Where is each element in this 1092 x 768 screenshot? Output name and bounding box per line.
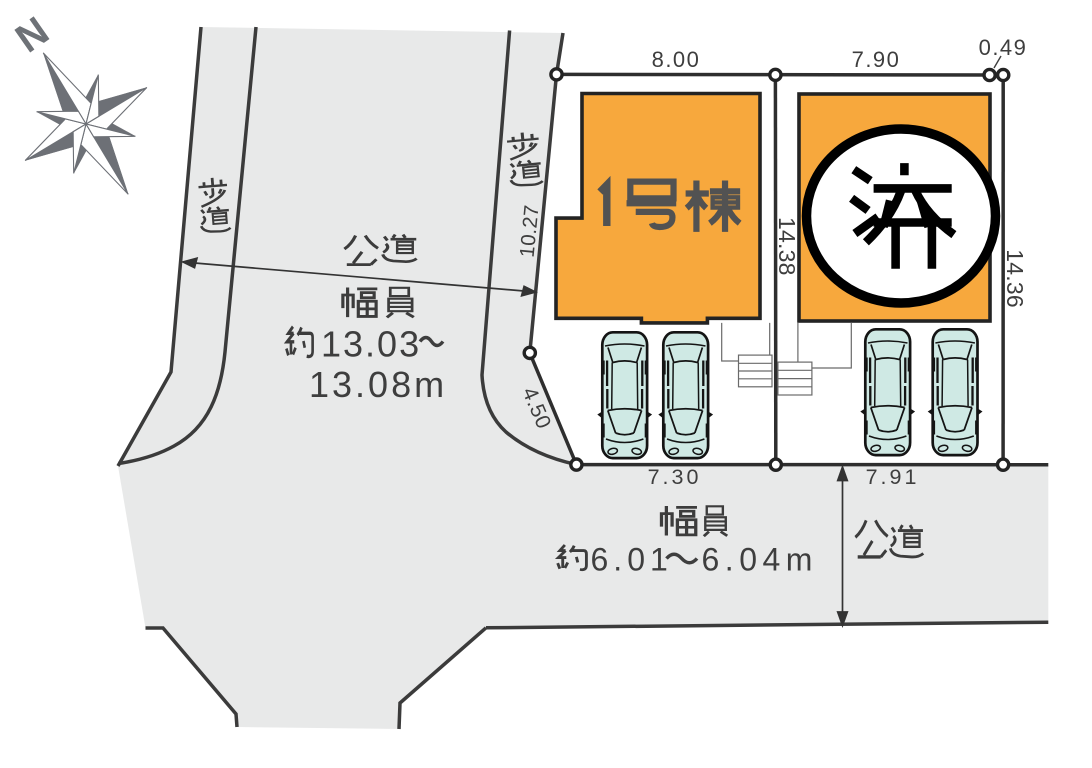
svg-text:6.04m: 6.04m	[702, 542, 818, 578]
svg-text:6.01: 6.01	[591, 542, 673, 578]
svg-text:14.36: 14.36	[1002, 249, 1028, 308]
svg-text:7.90: 7.90	[852, 47, 901, 72]
svg-text:7.91: 7.91	[866, 465, 920, 489]
svg-text:13.08m: 13.08m	[309, 364, 447, 405]
svg-text:8.00: 8.00	[652, 47, 701, 72]
svg-text:7.30: 7.30	[648, 465, 702, 489]
svg-text:0.49: 0.49	[979, 35, 1028, 60]
svg-text:N: N	[8, 9, 57, 62]
svg-text:14.38: 14.38	[774, 217, 800, 276]
svg-text:13.03: 13.03	[321, 324, 421, 365]
